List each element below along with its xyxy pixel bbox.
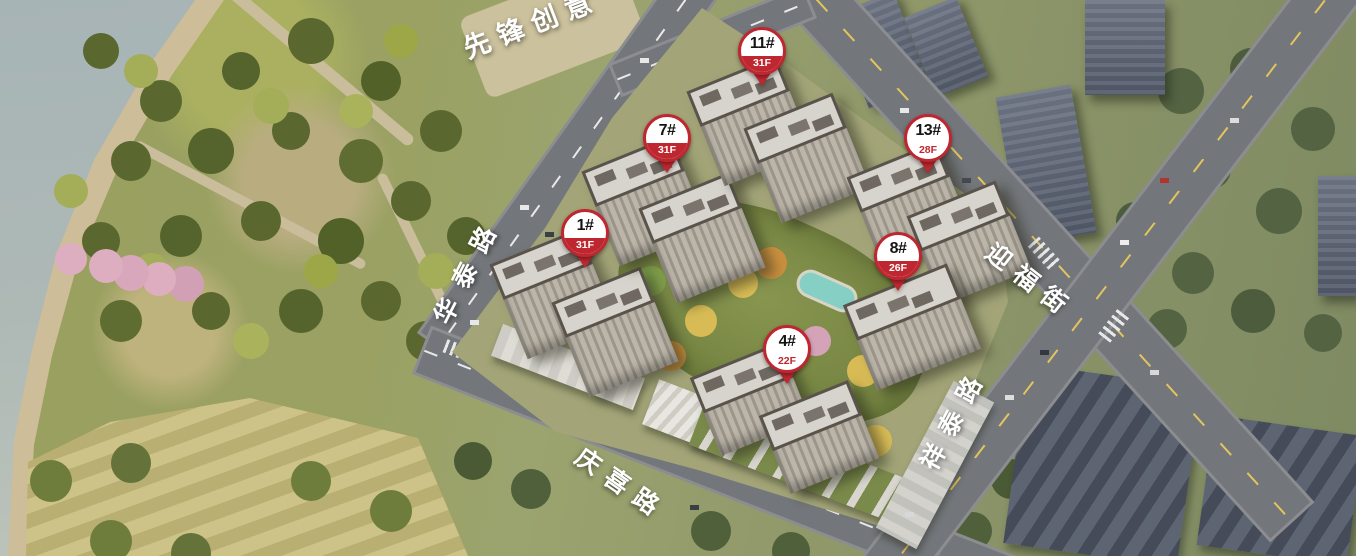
building-pin-11[interactable]: 11# 31F — [738, 27, 786, 86]
pin-bubble: 13# 28F — [904, 114, 952, 162]
pin-building-number: 4# — [766, 328, 808, 354]
park-path — [133, 140, 367, 271]
cars — [0, 0, 9, 5]
building-pin-1[interactable]: 1# 31F — [561, 209, 609, 268]
pin-bubble: 4# 22F — [763, 325, 811, 373]
pin-floor-count: 26F — [877, 261, 919, 277]
pin-building-number: 13# — [907, 117, 949, 143]
pin-floor-count: 22F — [766, 354, 808, 370]
pin-bubble: 8# 26F — [874, 232, 922, 280]
pin-floor-count: 31F — [646, 143, 688, 159]
city-building — [1318, 176, 1356, 296]
pin-building-number: 7# — [646, 117, 688, 143]
city-building — [1085, 0, 1165, 95]
building-pin-7[interactable]: 7# 31F — [643, 114, 691, 173]
park-path — [224, 0, 416, 148]
pin-bubble: 11# 31F — [738, 27, 786, 75]
pin-floor-count: 28F — [907, 143, 949, 159]
pin-bubble: 7# 31F — [643, 114, 691, 162]
building-pin-13[interactable]: 13# 28F — [904, 114, 952, 173]
farm-field — [0, 390, 480, 556]
pin-floor-count: 31F — [564, 238, 606, 254]
pin-floor-count: 31F — [741, 56, 783, 72]
aerial-masterplan-view: 1# 31F 7# 31F 11# 31F 13# 28F 8# 26F — [0, 0, 1356, 556]
pin-building-number: 8# — [877, 235, 919, 261]
pin-bubble: 1# 31F — [561, 209, 609, 257]
building-pin-4[interactable]: 4# 22F — [763, 325, 811, 384]
building-pin-8[interactable]: 8# 26F — [874, 232, 922, 291]
pin-building-number: 1# — [564, 212, 606, 238]
pin-building-number: 11# — [741, 30, 783, 56]
